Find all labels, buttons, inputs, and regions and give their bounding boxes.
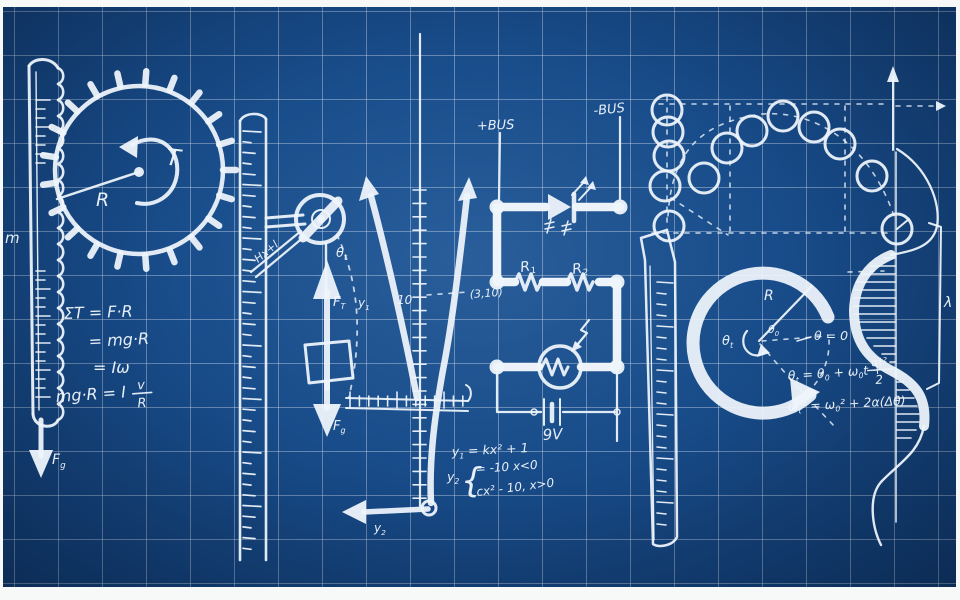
resistor1-label: R1 xyxy=(519,258,537,278)
h-ruler-tick xyxy=(243,420,251,421)
h-ruler-tick xyxy=(243,217,255,218)
i-ruler-tick xyxy=(657,403,666,404)
strobe-ball xyxy=(857,161,887,191)
rack-bottom-cap xyxy=(33,414,58,426)
parabola-equations: y1 = kx² + 1 y2 { = -10 x<0 cx² - 10, x>… xyxy=(446,440,555,501)
h-ruler-tick xyxy=(243,538,255,539)
letter-p-group: m Fg R T ΣT = F·R = mg·R = Iω mg·R = I v… xyxy=(5,59,236,478)
rack-inner-line xyxy=(36,72,39,410)
resistor2-label: R2 xyxy=(571,260,589,280)
sketch-layer: m Fg R T ΣT = F·R = mg·R = Iω mg·R = I v… xyxy=(0,0,960,600)
tension-arrowhead xyxy=(313,260,341,299)
frame-bottom xyxy=(0,587,960,600)
gear-tooth xyxy=(208,218,219,225)
gear-tooth xyxy=(68,228,78,237)
equation-torque-4: mg·R = I v R xyxy=(55,377,153,417)
circuit-wires-thick xyxy=(497,207,620,367)
equation-y2-lhs: y2 xyxy=(446,469,459,486)
h-ruler-tick xyxy=(243,366,255,367)
gear-tooth xyxy=(145,71,146,84)
disc-angle-t-label: θt xyxy=(722,334,734,350)
positive-bus-wire xyxy=(499,133,500,200)
i-ruler-tick xyxy=(657,337,666,338)
h-ruler-tick xyxy=(243,473,255,474)
gear-tooth xyxy=(117,254,120,267)
equation-torque-1: ΣT = F·R xyxy=(63,302,132,323)
strobe-ball xyxy=(689,163,719,193)
gear-tooth xyxy=(68,103,78,112)
rack-left-edge xyxy=(29,66,33,414)
i-ruler-tick xyxy=(657,502,673,503)
light-bolt xyxy=(577,320,589,345)
equation-theta-zero: θ = 0 xyxy=(814,328,848,343)
i-ruler-tick xyxy=(657,491,666,492)
letter-h-group: Hx+l θt FT Fg xyxy=(240,114,471,560)
rack-weight-label: Fg xyxy=(52,452,66,471)
equation-kinematic-denominator: 2 xyxy=(875,373,884,387)
wavelength-bracket xyxy=(927,223,941,389)
h-ruler-tick xyxy=(243,281,255,282)
gear-tooth xyxy=(117,73,120,86)
photoresistor-zigzag xyxy=(542,359,568,375)
i-ruler-tick xyxy=(657,359,666,360)
blueprint-canvas: m Fg R T ΣT = F·R = mg·R = Iω mg·R = I v… xyxy=(3,7,956,587)
i-ruler-tick xyxy=(657,304,666,305)
mini-axis-right-arrowhead xyxy=(936,101,946,111)
h-ruler-tick xyxy=(243,463,251,464)
frame-right xyxy=(956,0,960,600)
circuit-node xyxy=(490,275,505,290)
gear-tooth xyxy=(52,207,64,213)
strobe-ball xyxy=(650,171,680,201)
h-ruler-tick xyxy=(243,131,261,132)
h-ruler-tick xyxy=(243,185,261,186)
equation-y2-case2: cx² - 10, x>0 xyxy=(476,476,556,499)
descender-label: y2 xyxy=(373,521,386,537)
tension-label: FT xyxy=(333,295,346,311)
gear-tooth xyxy=(170,78,175,90)
construction-dashed-lines xyxy=(652,97,890,235)
equation-y2-case1: = -10 x<0 xyxy=(475,458,538,476)
disc-angle-0-label: θ0 xyxy=(768,323,779,338)
h-ruler-tick xyxy=(243,399,261,400)
h-ruler-tick xyxy=(243,195,255,196)
i-ruler-tick xyxy=(657,447,666,448)
h-ruler-tick xyxy=(243,345,261,346)
h-ruler-tick xyxy=(243,292,261,293)
gear-radius-label: R xyxy=(96,189,109,211)
gear-tooth xyxy=(91,84,98,95)
mini-axis-up-arrowhead xyxy=(887,66,899,82)
h-ruler-tick xyxy=(243,227,251,228)
frame-left xyxy=(0,0,3,600)
circuit-node xyxy=(490,200,505,215)
h-ruler-tick xyxy=(243,334,251,335)
frame-top xyxy=(0,0,960,7)
equation-torque-3: = Iω xyxy=(93,358,130,377)
strobe-ball xyxy=(825,129,855,159)
letter-s-wave-group: λ xyxy=(848,149,952,545)
h-ruler-tick xyxy=(243,388,255,389)
letter-s-circuit-group: +BUS -BUS R1 R2 9V xyxy=(477,101,628,444)
h-ruler-ticks xyxy=(243,131,261,549)
i-ruler-tick xyxy=(657,524,666,525)
h-ruler-tick xyxy=(243,441,251,442)
h-ruler-tick xyxy=(243,249,251,250)
strobe-ball-circles xyxy=(650,95,912,244)
descender-arrow-shaft xyxy=(364,509,428,512)
pendulum-weight-label: Fg xyxy=(333,419,346,435)
gear-tooth xyxy=(219,195,231,199)
i-ruler-tick xyxy=(657,315,666,316)
h-ruler-tick xyxy=(243,270,251,271)
i-ruler-tick xyxy=(657,414,673,415)
h-ruler-tick xyxy=(243,142,251,143)
projectile-diagram-group xyxy=(650,66,946,244)
equation-torque-4-left: mg·R = I xyxy=(55,382,127,406)
gear-torque-label: T xyxy=(165,145,184,173)
h-ruler-top-cap xyxy=(240,114,266,121)
i-ruler-tick xyxy=(657,348,666,349)
bus-positive-label: +BUS xyxy=(477,118,515,134)
descender-arrowhead xyxy=(342,500,366,524)
wavelength-label: λ xyxy=(943,295,952,311)
equation-y1: y1 = kx² + 1 xyxy=(450,440,529,461)
gear-tooth xyxy=(219,141,231,145)
blueprint-frame: m Fg R T ΣT = F·R = mg·R = Iω mg·R = I v… xyxy=(0,0,960,600)
strobe-ball xyxy=(799,112,829,142)
h-ruler-tick xyxy=(243,548,251,549)
h-ruler-tick xyxy=(243,527,251,528)
disc-radius-label: R xyxy=(764,288,774,304)
mass-label: m xyxy=(5,229,20,247)
strobe-ball xyxy=(768,101,798,131)
point-dashed-line xyxy=(427,292,468,295)
rack-top-cap xyxy=(29,59,58,68)
rack-force-arrowhead xyxy=(29,450,53,478)
i-ruler-outline xyxy=(641,230,677,546)
h-ruler-tick xyxy=(243,495,255,496)
h-ruler-tick xyxy=(243,152,255,153)
letter-i-group xyxy=(641,230,677,546)
i-ruler-tick xyxy=(657,392,666,393)
i-ruler-tick xyxy=(657,513,666,514)
diode-triangle xyxy=(548,194,571,220)
gear-tooth xyxy=(191,237,199,247)
h-ruler-tick xyxy=(243,356,251,357)
equation-torque-4-numerator: v xyxy=(137,378,146,394)
diode-polarity-marks xyxy=(545,219,571,235)
h-ruler-tick xyxy=(243,206,251,207)
i-ruler-tick xyxy=(657,425,666,426)
battery-label: 9V xyxy=(542,425,564,444)
rack-toothed-edge xyxy=(58,68,63,420)
i-ruler-tick xyxy=(657,436,666,437)
fraction-bar xyxy=(133,392,152,393)
h-ruler-tick xyxy=(243,452,261,453)
h-ruler-tick xyxy=(243,484,251,485)
h-ruler-tick xyxy=(243,174,255,175)
wave-thin-top xyxy=(891,149,938,255)
i-ruler-tick xyxy=(657,293,666,294)
letter-c-group: R θt θ0 θ = 0 θt = θ0 + ω0t + αt² 2 ωt² … xyxy=(693,273,906,428)
h-ruler-tick xyxy=(243,313,251,314)
i-ruler-tick xyxy=(657,469,666,470)
circuit-node xyxy=(610,275,625,290)
gear-tooth xyxy=(91,244,98,255)
i-ruler-tick xyxy=(657,458,673,459)
gear-tooth xyxy=(145,256,146,269)
h-ruler-tick xyxy=(243,259,255,260)
strobe-ball xyxy=(737,116,767,146)
pendulum-angle-label: θt xyxy=(336,246,348,262)
i-ruler-tick xyxy=(657,381,666,382)
h-ruler-tick xyxy=(243,516,255,517)
h-ruler-tick xyxy=(243,163,251,164)
right-arm-arrowhead xyxy=(458,177,477,201)
h-ruler-tick xyxy=(243,324,255,325)
i-ruler-tick xyxy=(657,370,673,371)
gear-tooth xyxy=(43,183,56,185)
h-ruler-tick xyxy=(243,409,255,410)
h-ruler-tick xyxy=(243,506,261,507)
gear-tooth xyxy=(208,114,219,121)
left-arm-arrowhead xyxy=(359,176,379,201)
h-ruler-tick xyxy=(243,431,255,432)
h-ruler-tick xyxy=(243,302,255,303)
ball-radius-line xyxy=(897,219,909,229)
equation-kinematic-text: θt = θ0 + ω0t + xyxy=(787,362,883,386)
i-ruler-tick xyxy=(657,326,673,327)
pulley-hub xyxy=(317,215,325,223)
gear-tooth xyxy=(43,155,56,157)
wave-thin-tail xyxy=(873,426,924,545)
i-ruler-tick xyxy=(657,282,673,283)
left-arm-label: y1 xyxy=(357,296,370,312)
equation-torque-4-denominator: R xyxy=(137,396,147,412)
axis-tick-label: 10 xyxy=(397,293,413,307)
x-axis-ruler-hook xyxy=(466,385,471,401)
pulley-arm xyxy=(266,215,305,227)
h-ruler-tick xyxy=(243,377,251,378)
gear-tooth xyxy=(191,93,199,103)
h-ruler-tick xyxy=(243,238,261,239)
spiral-arrowhead xyxy=(757,344,770,357)
equation-torque-2: = mg·R xyxy=(88,329,149,351)
gear-tooth xyxy=(170,250,175,262)
i-ruler-tick xyxy=(657,480,666,481)
torque-equations: ΣT = F·R = mg·R = Iω mg·R = I v R xyxy=(55,302,153,417)
torque-arrowhead xyxy=(119,136,138,158)
i-ruler-ticks xyxy=(657,282,673,525)
circuit-node xyxy=(613,200,628,215)
